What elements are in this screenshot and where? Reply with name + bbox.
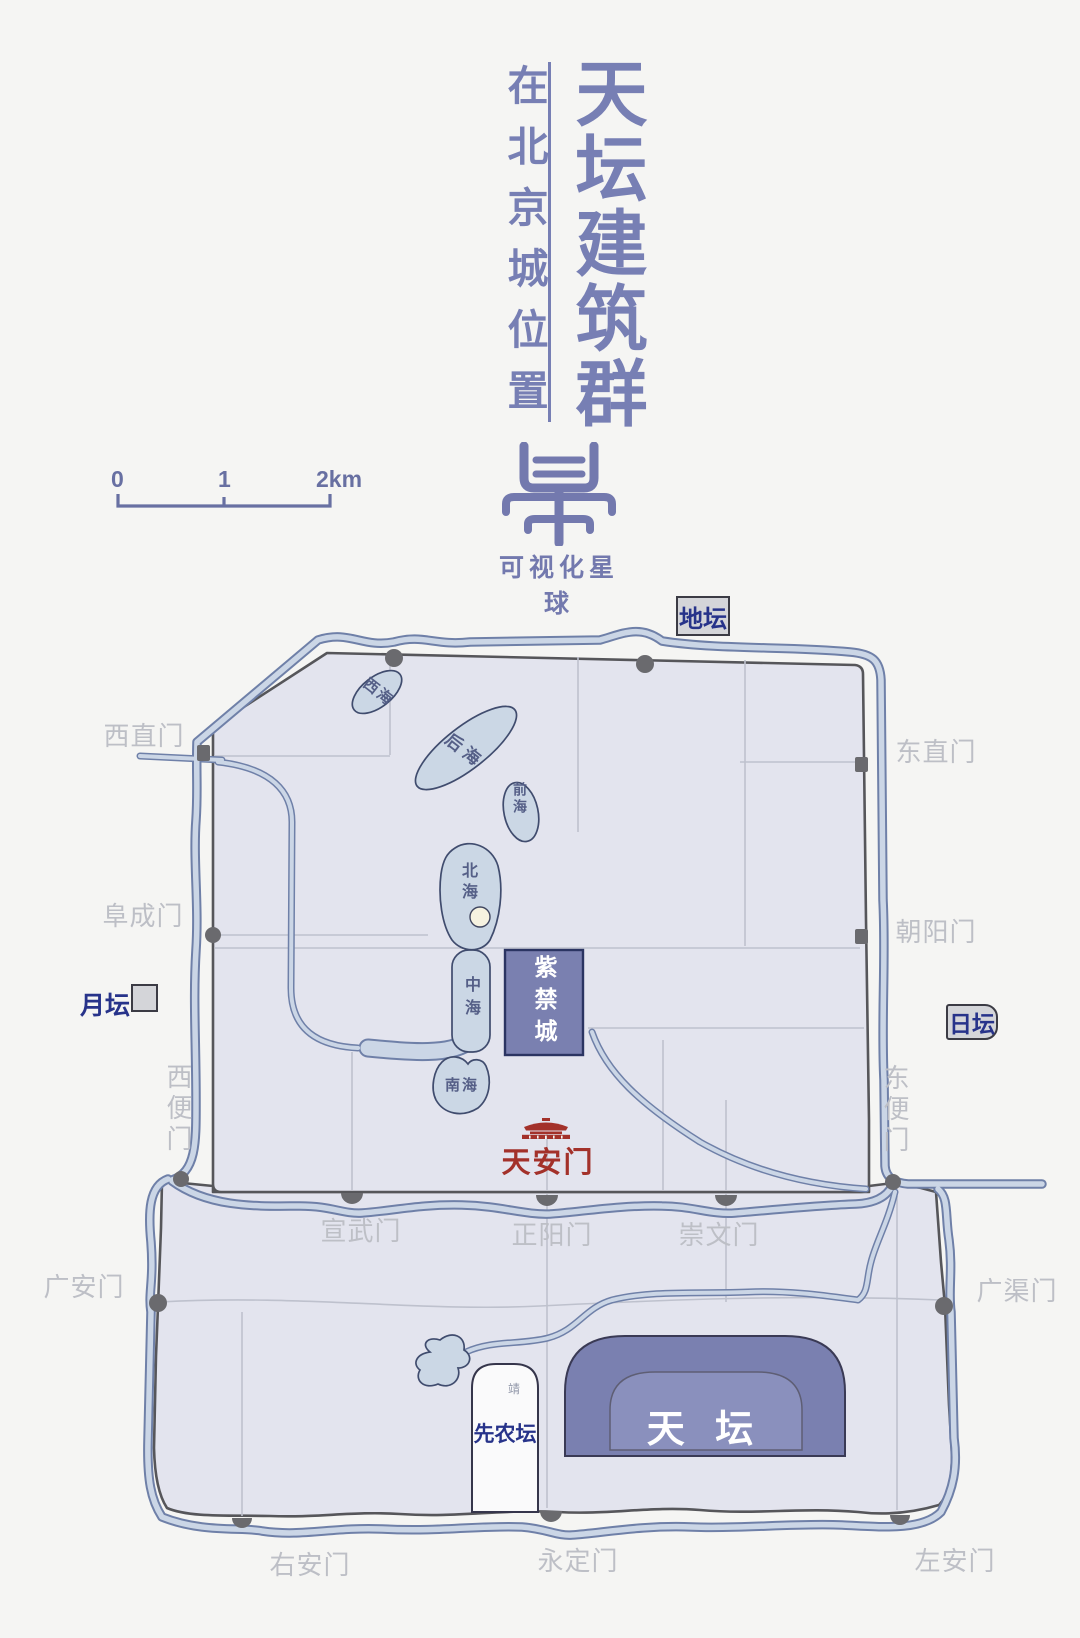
page-title: 天坛建筑群 (552, 56, 657, 431)
gate-marker-deshengmen (385, 649, 403, 667)
gate-marker-andingmen (636, 655, 654, 673)
gate-label-guanganmen: 广安门 (29, 1267, 139, 1304)
yuetan-label: 月坛 (80, 986, 130, 1022)
inner-city-wall (213, 653, 869, 1192)
gate-label-youanmen: 右安门 (255, 1545, 365, 1582)
forbidden-city-label: 紫禁城 (505, 950, 583, 1055)
lake-label-nanhai: 南海 (436, 1074, 488, 1095)
gate-label-zuoanmen: 左安门 (900, 1541, 1010, 1578)
gate-label-xuanwumen: 宣武门 (306, 1211, 416, 1248)
gate-label-dongbianmen: 东便门 (880, 1064, 914, 1204)
gate-label-dongzhimen: 东直门 (881, 732, 991, 769)
xiannongtan-label: 先农坛 (469, 1418, 541, 1448)
gate-marker-chaoyangmen (855, 929, 868, 944)
xiannongtan-tiny-mark: 靖 (508, 1380, 520, 1397)
gate-label-chaoyangmen: 朝阳门 (881, 912, 991, 949)
yuetan-marker-box (131, 984, 158, 1012)
tiananmen-icon (520, 1118, 572, 1139)
scale-2km: 2km (316, 466, 362, 493)
ritan-label-box: 日坛 (946, 1004, 998, 1040)
gate-marker-guangqumen (935, 1297, 953, 1315)
lake-label-qianhai: 前海 (510, 782, 530, 816)
gate-label-chongwenmen: 崇文门 (664, 1215, 774, 1252)
lake-label-beihai: 北海 (455, 862, 479, 904)
gate-label-zhengyangmen: 正阳门 (497, 1215, 607, 1252)
gate-label-fuchengmen: 阜成门 (88, 896, 198, 933)
ditan-label-box: 地坛 (676, 596, 730, 636)
tiananmen-label: 天安门 (496, 1139, 600, 1181)
brand-seal-icon (494, 442, 624, 546)
tiantan-label: 天 坛 (605, 1398, 805, 1453)
page-subtitle: 在北京城位置 (494, 64, 554, 430)
beihai-island (470, 907, 490, 927)
gate-label-yongdingmen: 永定门 (523, 1541, 633, 1578)
gate-label-xibianmen: 西便门 (163, 1063, 197, 1203)
poster-canvas: 天坛建筑群 在北京城位置 可视化星球 0 1 2km 西直门 东直门 阜成门 朝… (0, 0, 1080, 1638)
gate-marker-guanganmen (149, 1294, 167, 1312)
scale-1: 1 (218, 466, 231, 493)
lake-label-zhonghai: 中海 (458, 976, 482, 1022)
scale-0: 0 (111, 466, 124, 493)
gate-marker-dongzhimen (855, 757, 868, 772)
brand-name: 可视化星球 (488, 548, 630, 620)
gate-label-guangqumen: 广渠门 (962, 1271, 1072, 1308)
gate-marker-yongdingmen (540, 1511, 562, 1522)
gate-marker-fuchengmen (205, 927, 221, 943)
gate-label-xizhimen: 西直门 (89, 716, 199, 753)
